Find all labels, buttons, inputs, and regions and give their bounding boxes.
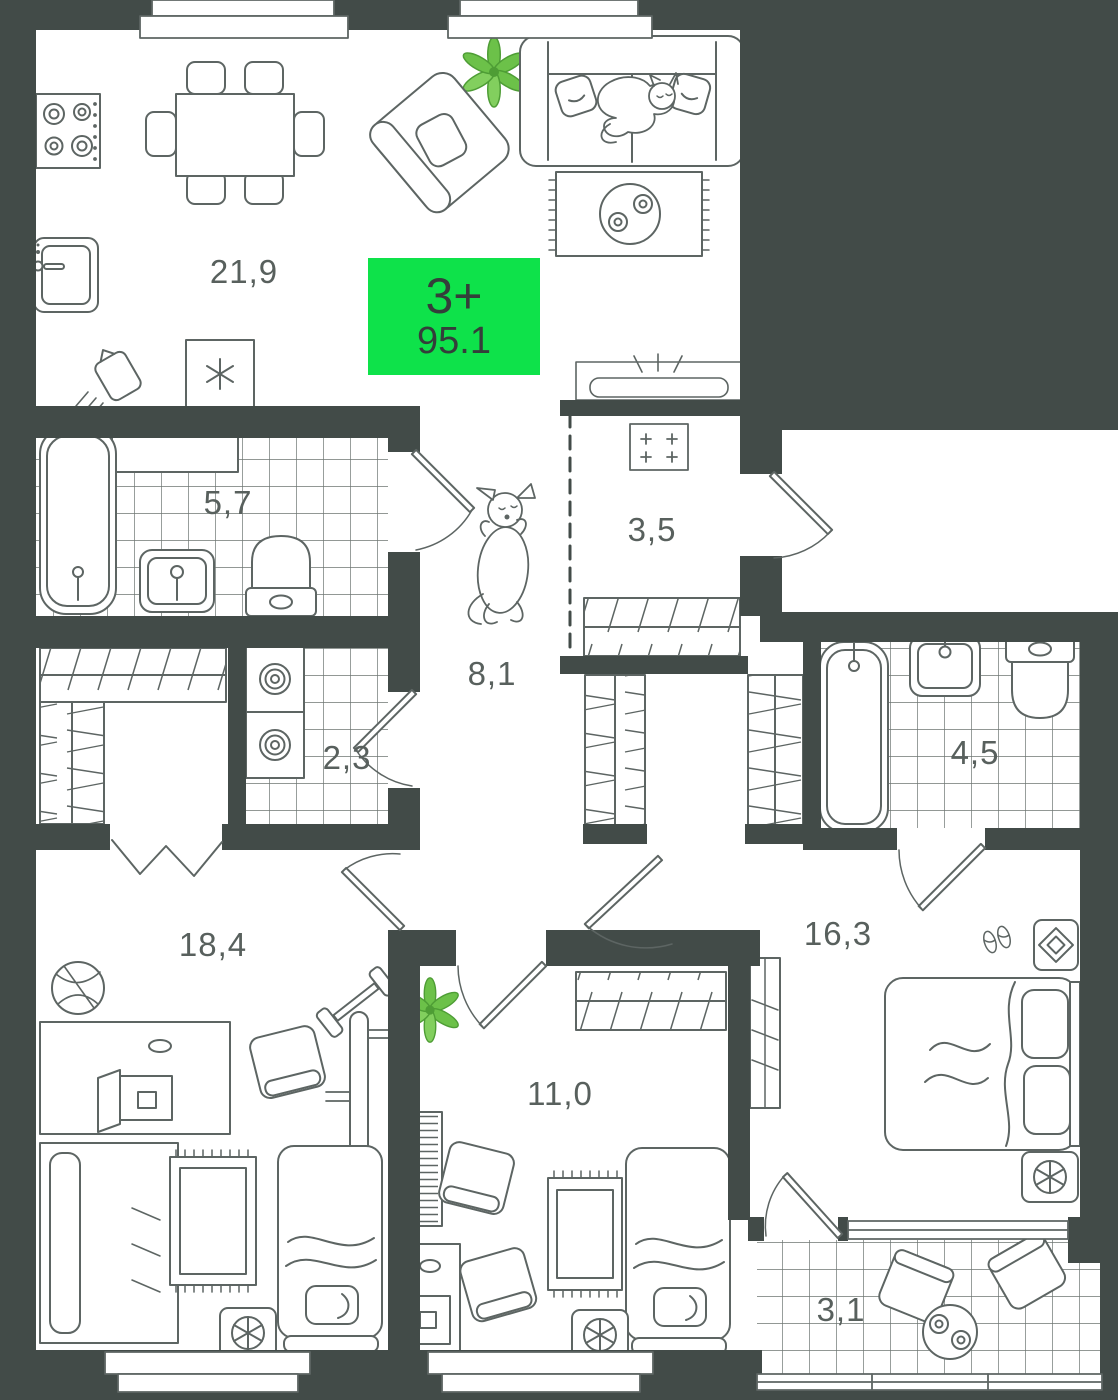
kitchen-zone: [34, 62, 325, 415]
meter-box-icon: [630, 424, 688, 470]
room-label-master-bedroom: 16,3: [804, 915, 872, 953]
window-top-2: [448, 0, 652, 38]
bedroom-first-door: [342, 854, 404, 930]
entry-wardrobe: [584, 598, 740, 656]
bathtub-icon: [820, 642, 888, 832]
room-label-balcony: 3,1: [817, 1291, 866, 1329]
entrance-door: [770, 472, 832, 558]
dryer-icon: [246, 712, 304, 778]
bedroom-second-wardrobe: [576, 972, 726, 1030]
room-label-bedroom-second: 11,0: [527, 1075, 593, 1113]
room-label-kitchen-living: 21,9: [210, 253, 278, 291]
chair-1: [437, 1140, 516, 1216]
bedroom-second-door: [458, 962, 546, 1028]
entry-hall-items: [630, 424, 688, 470]
dog-icon: [468, 484, 535, 624]
fridge-icon: [186, 340, 254, 408]
room-label-bedroom-first: 18,4: [179, 926, 247, 964]
balcony-door: [765, 1173, 842, 1238]
chair-2: [458, 1246, 539, 1324]
closet-vertical: [40, 702, 104, 824]
floor-plan: 21,9 5,7 2,3 8,1 3,5 4,5 18,4 11,0 16,3 …: [0, 0, 1118, 1400]
desk-chair: [248, 1024, 327, 1100]
bathroom-second-door: [899, 844, 985, 910]
bedroom-balcony-window: [848, 1221, 1068, 1239]
folding-door: [112, 840, 222, 876]
basketball-icon: [52, 962, 104, 1014]
laundry-fixtures: [246, 646, 304, 778]
floor-plan-graphic: [0, 0, 1118, 1400]
corridor-wardrobe-left: [585, 675, 645, 825]
kitchen-sink-icon: [34, 238, 99, 312]
desk: [40, 1022, 230, 1134]
closet-band: [40, 648, 226, 702]
nightstand-top: [1034, 920, 1078, 970]
corridor-wardrobe-right: [748, 675, 803, 825]
room-label-entry-hall: 3,5: [628, 511, 677, 549]
toilet-icon: [246, 536, 316, 616]
dining-table: [146, 62, 324, 204]
rug: [548, 1171, 622, 1297]
cutting-board-icon: [76, 342, 143, 415]
apartment-area-label: 95.1: [417, 322, 491, 362]
window-top-1: [140, 0, 348, 38]
master-bedroom-items: [885, 920, 1080, 1202]
bed: [626, 1148, 730, 1354]
slippers-icon: [981, 925, 1012, 954]
balcony-glazing: [757, 1374, 1102, 1390]
window-bottom-2: [428, 1352, 653, 1392]
toilet-icon: [1006, 636, 1074, 718]
stove-icon: [36, 94, 100, 168]
room-label-bathroom-second: 4,5: [951, 734, 1000, 772]
entry-mat: [576, 354, 742, 400]
bathroom-main-door: [412, 450, 474, 550]
master-wardrobe: [750, 958, 780, 1108]
nightstand-fan: [1022, 1152, 1078, 1202]
room-label-laundry: 2,3: [323, 739, 372, 777]
washer-icon: [246, 646, 304, 712]
room-label-hallway: 8,1: [468, 655, 517, 693]
bedroom-first-wardrobe: [40, 1143, 178, 1343]
bathtub-icon: [40, 428, 116, 614]
living-rug: [549, 172, 709, 256]
room-label-bathroom-main: 5,7: [204, 484, 253, 522]
window-bottom-1: [105, 1352, 310, 1392]
apartment-type-label: 3+: [425, 271, 482, 322]
double-bed: [885, 978, 1080, 1150]
area-badge: 3+ 95.1: [368, 258, 540, 375]
coffee-table-icon: [600, 184, 660, 244]
bedroom-second-items: [398, 978, 730, 1360]
balcony-table: [923, 1305, 977, 1359]
bed: [278, 1146, 382, 1352]
rug: [170, 1150, 256, 1292]
sink-icon: [140, 550, 214, 612]
